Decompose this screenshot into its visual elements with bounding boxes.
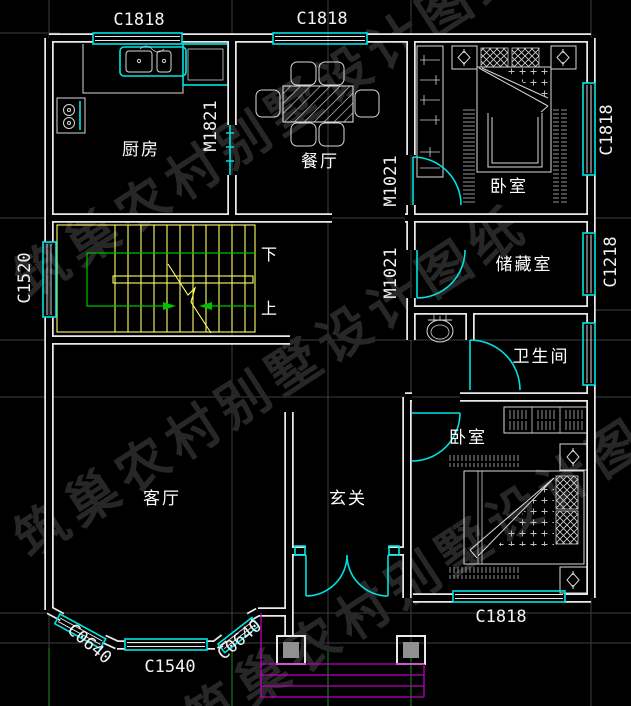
window-label-top-mid: C1818 [296,9,347,29]
door-label-kitchen: M1821 [201,100,221,151]
bedroom1-label: 卧室 [490,177,528,197]
bedroom2-pillow-top [556,476,578,509]
living-room-label: 客厅 [143,489,181,509]
bedroom2-wardrobe [504,407,588,433]
door-label-storage: M1021 [381,247,401,298]
stair-up-label: 上 [261,299,277,318]
storage-label: 储藏室 [496,255,553,275]
bedroom1-pillow-left [481,48,508,67]
floor-plan-canvas: 筑巢农村别墅设计图纸 筑巢农村别墅设计图纸 筑巢农村别墅设计图纸 [0,0,631,706]
bathroom-label: 卫生间 [513,347,570,367]
window-label-bay-mid: C1540 [144,657,195,677]
entry-label: 玄关 [329,489,367,509]
door-label-bedroom1: M1021 [381,155,401,206]
dining-table [283,86,353,122]
bedroom2-label: 卧室 [449,428,487,448]
bedroom2-rug-top [449,455,521,467]
window-label-top-left: C1818 [113,10,164,30]
bedroom2-pillow-bottom [556,511,578,544]
window-label-right-top: C1818 [597,104,617,155]
bedroom1-rug-right [553,108,567,204]
floor-plan-drawing: 筑巢农村别墅设计图纸 筑巢农村别墅设计图纸 筑巢农村别墅设计图纸 [0,0,631,706]
stair-down-label: 下 [261,245,277,264]
window-label-left: C1520 [15,252,35,303]
bedroom2-rug-bottom [449,567,521,579]
dining-label: 餐厅 [301,152,339,172]
bedroom1-pillow-right [512,48,539,67]
bedroom1-rug-left [461,108,475,204]
window-label-right-mid: C1218 [601,236,621,287]
kitchen-label: 厨房 [122,140,160,160]
window-label-bottom: C1818 [475,607,526,627]
